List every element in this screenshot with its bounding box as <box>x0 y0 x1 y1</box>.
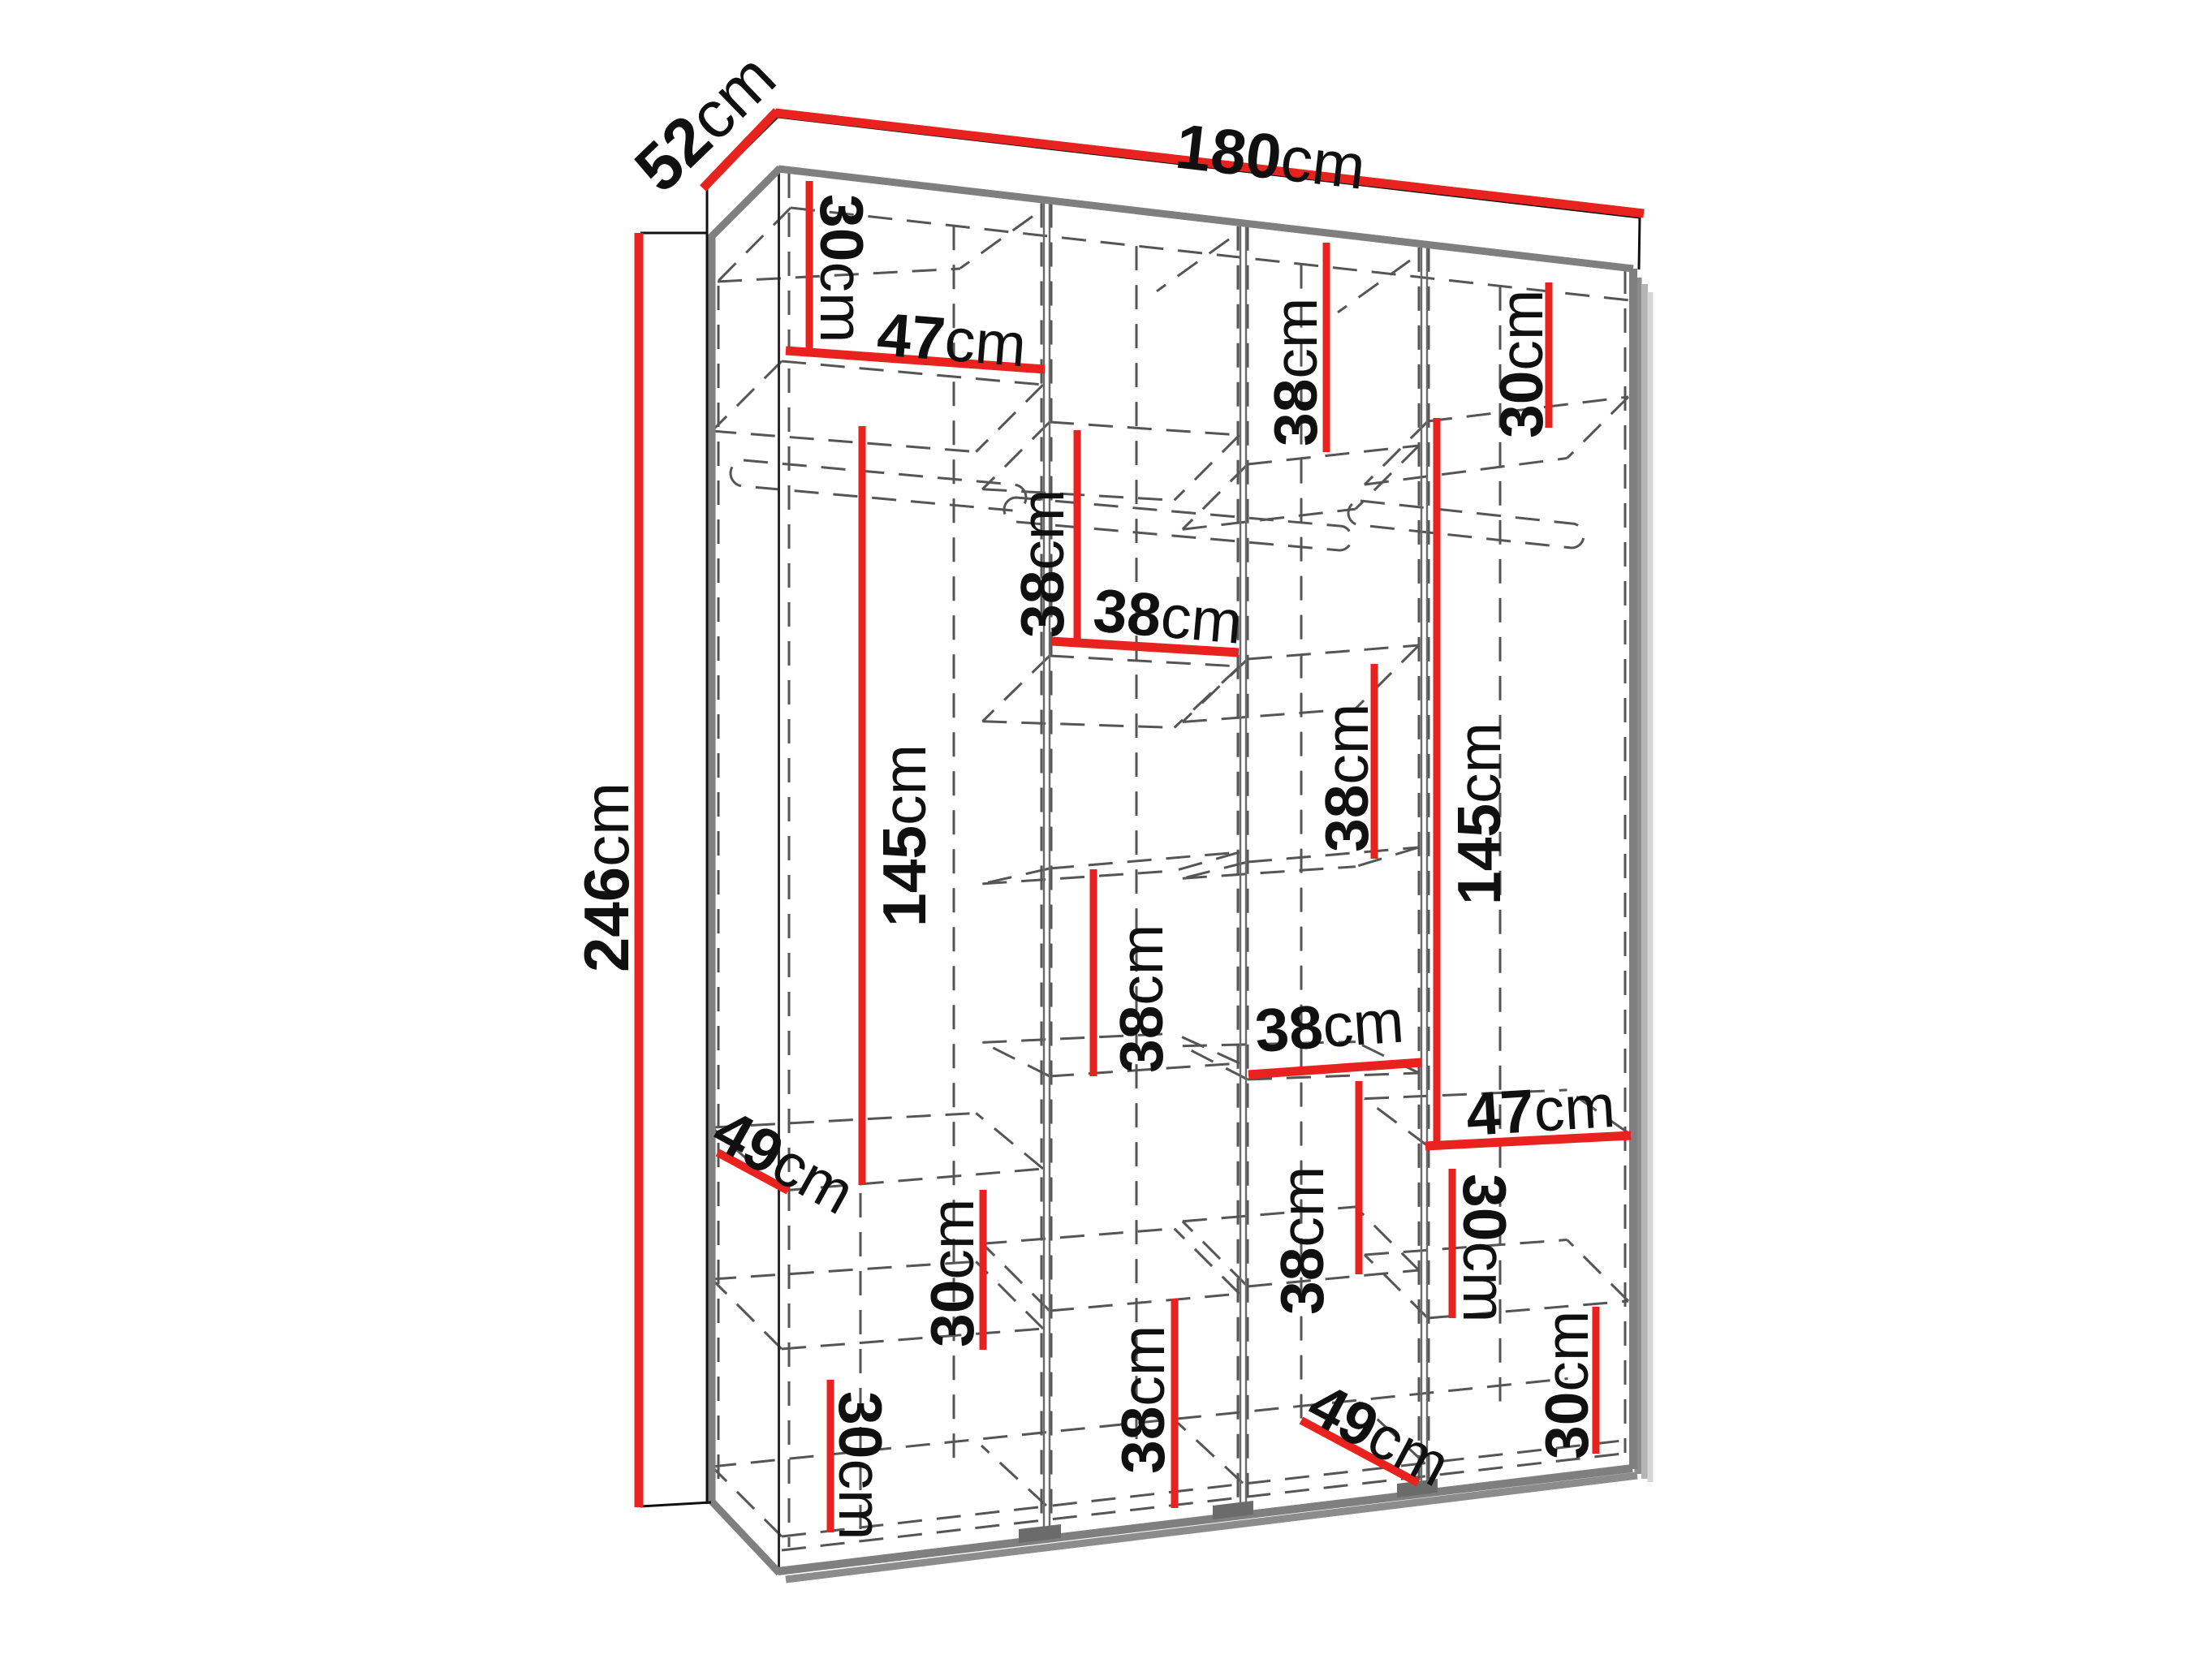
svg-text:145cm: 145cm <box>870 744 938 927</box>
svg-text:38cm: 38cm <box>1268 1166 1336 1315</box>
svg-text:38cm: 38cm <box>1008 489 1076 638</box>
svg-text:47cm: 47cm <box>875 299 1028 379</box>
svg-text:30cm: 30cm <box>918 1199 986 1347</box>
svg-text:30cm: 30cm <box>1487 290 1555 438</box>
svg-text:30cm: 30cm <box>808 194 876 343</box>
svg-text:145cm: 145cm <box>1445 722 1513 905</box>
svg-text:38cm: 38cm <box>1313 704 1381 852</box>
svg-text:30cm: 30cm <box>826 1391 895 1540</box>
svg-text:246cm: 246cm <box>571 782 642 972</box>
svg-text:30cm: 30cm <box>1451 1174 1519 1322</box>
svg-text:38cm: 38cm <box>1261 298 1330 446</box>
svg-text:30cm: 30cm <box>1533 1311 1601 1459</box>
svg-text:38cm: 38cm <box>1091 575 1245 657</box>
svg-text:38cm: 38cm <box>1253 986 1406 1065</box>
svg-text:38cm: 38cm <box>1109 1325 1177 1474</box>
svg-text:38cm: 38cm <box>1107 924 1175 1073</box>
svg-text:47cm: 47cm <box>1464 1071 1617 1148</box>
